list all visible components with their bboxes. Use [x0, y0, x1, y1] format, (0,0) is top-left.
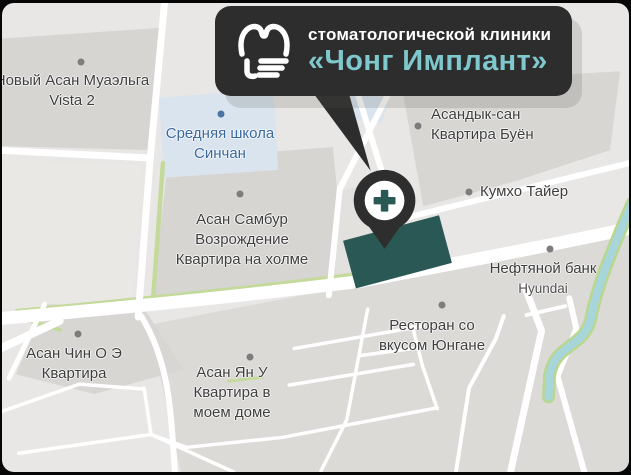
poi-line: Асандык-сан — [431, 105, 534, 125]
road — [2, 150, 150, 158]
poi-label-school[interactable]: Средняя школа Синчан — [166, 124, 275, 164]
poi-dot — [237, 191, 244, 198]
poi-line: Квартира — [26, 364, 122, 384]
poi-line: Vista 2 — [2, 91, 149, 111]
poi-line: Нефтяной банк — [490, 259, 597, 279]
poi-dot — [466, 189, 473, 196]
clinic-type-label: стоматологической клиники — [308, 24, 551, 45]
poi-dot — [439, 302, 446, 309]
block — [2, 161, 142, 312]
poi-label-asandyk[interactable]: Асандык-сан Квартира Буён — [431, 105, 534, 145]
poi-line: Hyundai — [490, 279, 597, 299]
poi-line: Новый Асан Муаэльга — [2, 71, 149, 91]
poi-dot — [78, 59, 85, 66]
clinic-name-label: «Чонг Имплант» — [308, 45, 551, 78]
tooth-icon — [231, 20, 297, 82]
poi-label-sambur[interactable]: Асан Самбур Возрождение Квартира на холм… — [176, 210, 309, 270]
poi-line: Асан Ян У — [193, 363, 270, 383]
poi-dot — [415, 123, 422, 130]
poi-line: Квартира на холме — [176, 250, 309, 270]
map-canvas[interactable]: Новый Асан Муаэльга Vista 2 Средняя школ… — [2, 3, 629, 472]
poi-line: Возрождение — [176, 230, 309, 250]
poi-dot — [247, 354, 254, 361]
poi-line: Квартира в — [193, 383, 270, 403]
poi-line: Синчан — [166, 144, 275, 164]
poi-line: Асан Самбур — [176, 210, 309, 230]
poi-dot — [218, 111, 225, 118]
poi-label-chin[interactable]: Асан Чин О Э Квартира — [26, 344, 122, 384]
poi-dot — [75, 331, 82, 338]
poi-line: Асан Чин О Э — [26, 344, 122, 364]
poi-line: Ресторан со — [379, 316, 485, 336]
poi-label-yanu[interactable]: Асан Ян У Квартира в моем доме — [193, 363, 270, 423]
poi-label-vista2[interactable]: Новый Асан Муаэльга Vista 2 — [2, 71, 149, 111]
clinic-callout: стоматологической клиники «Чонг Имплант» — [215, 6, 572, 96]
poi-line: моем доме — [193, 403, 270, 423]
poi-label-oilbank[interactable]: Нефтяной банк Hyundai — [490, 259, 597, 299]
poi-line: Средняя школа — [166, 124, 275, 144]
poi-label-kumho[interactable]: Кумхо Тайер — [480, 182, 568, 202]
poi-dot — [547, 246, 554, 253]
callout-text: стоматологической клиники «Чонг Имплант» — [308, 24, 551, 79]
poi-line: Кумхо Тайер — [480, 182, 568, 202]
poi-line: вкусом Юнгане — [379, 336, 485, 356]
poi-line: Квартира Буён — [431, 125, 534, 145]
poi-label-restaurant[interactable]: Ресторан со вкусом Юнгане — [379, 316, 485, 356]
